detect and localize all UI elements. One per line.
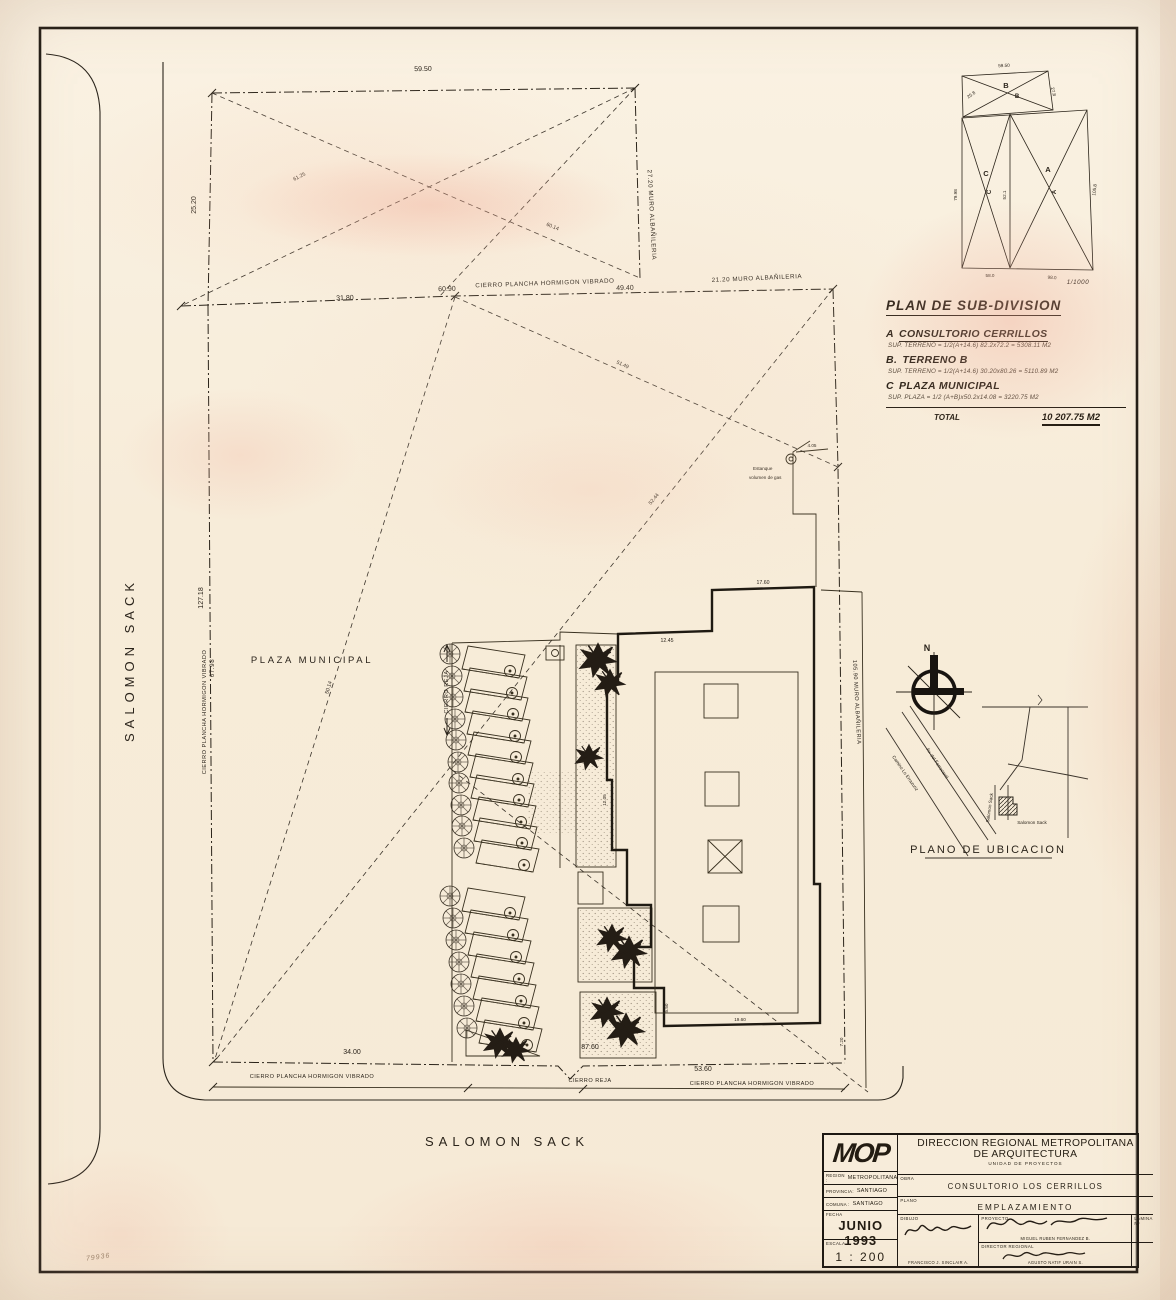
fence-left-label: CIERRO PLANCHA HORMIGON VIBRADO: [202, 650, 208, 775]
mop-logo: MOP: [824, 1135, 897, 1172]
diagram-dim-bot-b: 98.0: [1047, 275, 1057, 280]
street-lines: [46, 54, 903, 1184]
director-cell: DIRECTOR REGIONAL AGUSTO NATIF URAIN S.: [979, 1243, 1131, 1266]
zone-b-label: B: [1003, 81, 1009, 90]
planting-areas: [528, 646, 654, 1056]
obra-value: CONSULTORIO LOS CERRILLOS: [898, 1182, 1152, 1191]
diagram-dim-bot-a: 58.0: [986, 273, 995, 278]
dim-bld-ledge: 12.45: [661, 638, 674, 644]
legend-title: PLAN DE SUB-DIVISION: [886, 298, 1061, 316]
legend-total-value: 10 207.75 M2: [1042, 412, 1100, 426]
diagram-scale-note: 1/1000: [1067, 279, 1090, 286]
diagram-dim-right: 105.8: [1091, 183, 1097, 195]
provincia-label: PROVINCIA:: [826, 1189, 854, 1194]
dibujo-cell: DIBUJO FRANCISCO J. SINCLAIR A.: [898, 1215, 979, 1266]
region-row: REGION : METROPOLITANA: [824, 1172, 897, 1185]
dim-diag-t2: 60.14: [545, 222, 559, 233]
zone-b2-label: B: [1015, 94, 1020, 100]
location-map-title: PLANO DE UBICACION: [910, 844, 1066, 856]
dim-bld-bot: 19.60: [734, 1017, 746, 1022]
dim-row2-b: 60.90: [438, 286, 456, 294]
lamina-cell: LAMINA Nº: [1132, 1215, 1152, 1243]
stall-row-upper: [440, 644, 539, 872]
gate-bottom-label: CIERRO REJA: [568, 1078, 611, 1084]
legend-name-c: PLAZA MUNICIPAL: [899, 380, 1000, 392]
location-map: [886, 695, 1088, 858]
comuna-row: COMUNA : SANTIAGO: [824, 1198, 897, 1211]
property-boundary: [181, 88, 845, 1079]
dim-bot-b: 87.60: [581, 1044, 599, 1051]
provincia-row: PROVINCIA: SANTIAGO: [824, 1185, 897, 1198]
dim-r-a: 7.20: [839, 1037, 844, 1046]
legend-detail-c: SUP. PLAZA = 1/2 (A+B)x50.2x14.08 = 3220…: [888, 394, 1138, 401]
comuna-label: COMUNA :: [826, 1202, 850, 1207]
dibujo-name: FRANCISCO J. SINCLAIR A.: [898, 1260, 978, 1265]
legend-detail-a: SUP. TERRENO = 1/2(A+14.6) 82.2x72.2 = 5…: [888, 342, 1138, 349]
diagram-dim-top: 59.50: [998, 63, 1010, 68]
legend-detail-b: SUP. TERRENO = 1/2(A+14.6) 30.20x80.26 =…: [888, 368, 1138, 375]
org-line-1: DIRECCION REGIONAL METROPOLITANA: [898, 1138, 1152, 1149]
director-name: AGUSTO NATIF URAIN S.: [979, 1260, 1131, 1265]
legend-key-b: B.: [886, 354, 897, 366]
diagram-dim-ul: 25.8: [966, 90, 977, 99]
mop-logo-text: MOP: [831, 1138, 890, 1169]
street-sack-h-label: Salomon Sack: [1017, 820, 1047, 825]
region-value: METROPOLITANA: [848, 1175, 898, 1181]
dim-row2-c: 49.40: [616, 285, 634, 293]
title-block-left-column: MOP REGION : METROPOLITANA PROVINCIA: SA…: [824, 1135, 898, 1266]
compound-lines: [213, 441, 866, 1089]
wall-top-label: 21.20 MURO ALBAÑILERIA: [712, 273, 803, 284]
paper-edge-shade: [1160, 0, 1176, 1300]
dim-r-b: 5.50: [664, 1003, 669, 1012]
legend-item-b: B.TERRENO B: [886, 354, 1138, 366]
dim-diag-2: 52.44: [648, 492, 661, 506]
lamina-column: LAMINA Nº: [1132, 1215, 1152, 1266]
proyecto-director-column: PROYECTO MIGUEL RUBEN FERNANDEZ B. DIREC…: [979, 1215, 1132, 1266]
org-line-2: DE ARQUITECTURA: [898, 1149, 1152, 1160]
street-sack-v-label: Salomon Sack: [985, 792, 994, 823]
dim-diag-3: 50.14: [324, 681, 334, 695]
proyecto-signature: [983, 1209, 1113, 1239]
dim-bld-top: 17.60: [757, 580, 770, 586]
dim-west-len: 67.98: [209, 659, 216, 677]
diagram-dim-left: 79.98: [953, 189, 958, 201]
legend-total-row: TOTAL 10 207.75 M2: [886, 407, 1126, 426]
organization-header: DIRECCION REGIONAL METROPOLITANA DE ARQU…: [898, 1135, 1152, 1175]
obra-label: OBRA: [898, 1175, 1152, 1181]
subdivision-labels: B B C C A A 1/1000 59.50 79.98 105.8 52.…: [953, 63, 1098, 286]
proyecto-name: MIGUEL RUBEN FERNANDEZ B.: [979, 1236, 1131, 1241]
plaza-label: PLAZA MUNICIPAL: [251, 655, 373, 666]
region-label: REGION :: [826, 1173, 845, 1183]
escala-value: 1 : 200: [824, 1250, 897, 1264]
zone-c-label: C: [983, 169, 989, 178]
legend-total-label: TOTAL: [934, 413, 960, 422]
zone-a2-label: A: [1052, 189, 1058, 194]
proyecto-cell: PROYECTO MIGUEL RUBEN FERNANDEZ B.: [979, 1215, 1131, 1243]
fecha-cell: FECHA JUNIO 1993: [824, 1211, 897, 1240]
subdivision-diagram: [962, 71, 1093, 270]
dim-top: 59.50: [414, 66, 432, 73]
provincia-value: SANTIAGO: [857, 1188, 887, 1194]
tank-note-line2: volumen de gas: [749, 475, 782, 480]
dim-diag-t1: 61.25: [292, 172, 306, 183]
dim-tank: 4.05: [808, 443, 817, 448]
org-line-3: UNIDAD DE PROYECTOS: [898, 1161, 1152, 1166]
legend-name-b: TERRENO B: [902, 354, 967, 366]
dim-bot-a: 34.00: [343, 1049, 361, 1056]
legend-item-a: ACONSULTORIO CERRILLOS: [886, 328, 1138, 340]
site-plan-drawing: SALOMON SACK SALOMON SACK PLAZA MUNICIPA…: [0, 0, 1176, 1300]
east-wall-label: 105.90 MURO ALBAÑILERIA: [851, 660, 862, 745]
plan-labels: SALOMON SACK SALOMON SACK PLAZA MUNICIPA…: [122, 66, 862, 1149]
zone-c2-label: C: [987, 189, 993, 194]
dim-diag-1: 51.49: [615, 360, 629, 371]
obra-cell: OBRA CONSULTORIO LOS CERRILLOS: [898, 1175, 1152, 1197]
dim-west: 127.18: [198, 587, 205, 609]
title-block: MOP REGION : METROPOLITANA PROVINCIA: SA…: [822, 1133, 1139, 1268]
stall-row-lower: [440, 886, 542, 1052]
street-ferrocarril-label: Av. del Ferrocarril: [925, 747, 949, 779]
legend-key-c: C: [886, 380, 894, 392]
street-label-left: SALOMON SACK: [122, 578, 137, 742]
signature-row: DIBUJO FRANCISCO J. SINCLAIR A. PROYECTO…: [898, 1215, 1152, 1266]
fecha-label: FECHA: [824, 1211, 897, 1217]
legend-key-a: A: [886, 328, 894, 340]
empty-cell: [1132, 1243, 1152, 1266]
gate-inner-label: CIERRO REJA: [444, 670, 450, 713]
comuna-value: SANTIAGO: [853, 1201, 883, 1207]
zone-a-label: A: [1045, 165, 1051, 174]
legend-item-c: CPLAZA MUNICIPAL: [886, 380, 1138, 392]
dim-bot-c: 53.60: [694, 1066, 712, 1073]
fence-bottom-b-label: CIERRO PLANCHA HORMIGON VIBRADO: [690, 1081, 815, 1087]
subdivision-legend: PLAN DE SUB-DIVISION ACONSULTORIO CERRIL…: [886, 297, 1138, 426]
fence-bottom-a-label: CIERRO PLANCHA HORMIGON VIBRADO: [250, 1074, 375, 1080]
north-arrow: [896, 652, 972, 730]
tank-note-line1: Estanque: [753, 466, 773, 471]
dibujo-signature: [902, 1219, 974, 1243]
legend-name-a: CONSULTORIO CERRILLOS: [899, 328, 1048, 342]
wall-parcel-label: 27.20 MURO ALBAÑILERIA: [646, 170, 658, 261]
dim-bld-left: 12.05: [602, 794, 607, 806]
dim-row2-a: 31.80: [336, 295, 354, 303]
survey-diagonals: [181, 88, 868, 1092]
dim-top-left: 25.20: [191, 196, 198, 214]
street-label-bottom: SALOMON SACK: [425, 1134, 589, 1149]
escala-cell: ESCALA 1 : 200: [824, 1240, 897, 1266]
escala-label: ESCALA: [824, 1240, 897, 1246]
title-block-right-column: DIRECCION REGIONAL METROPOLITANA DE ARQU…: [898, 1135, 1152, 1266]
fence-top-label: CIERRO PLANCHA HORMIGON VIBRADO: [475, 278, 614, 290]
north-letter: N: [924, 643, 931, 653]
lamina-label: LAMINA Nº: [1132, 1215, 1152, 1226]
diagram-dim-mid: 52.1: [1002, 190, 1007, 199]
